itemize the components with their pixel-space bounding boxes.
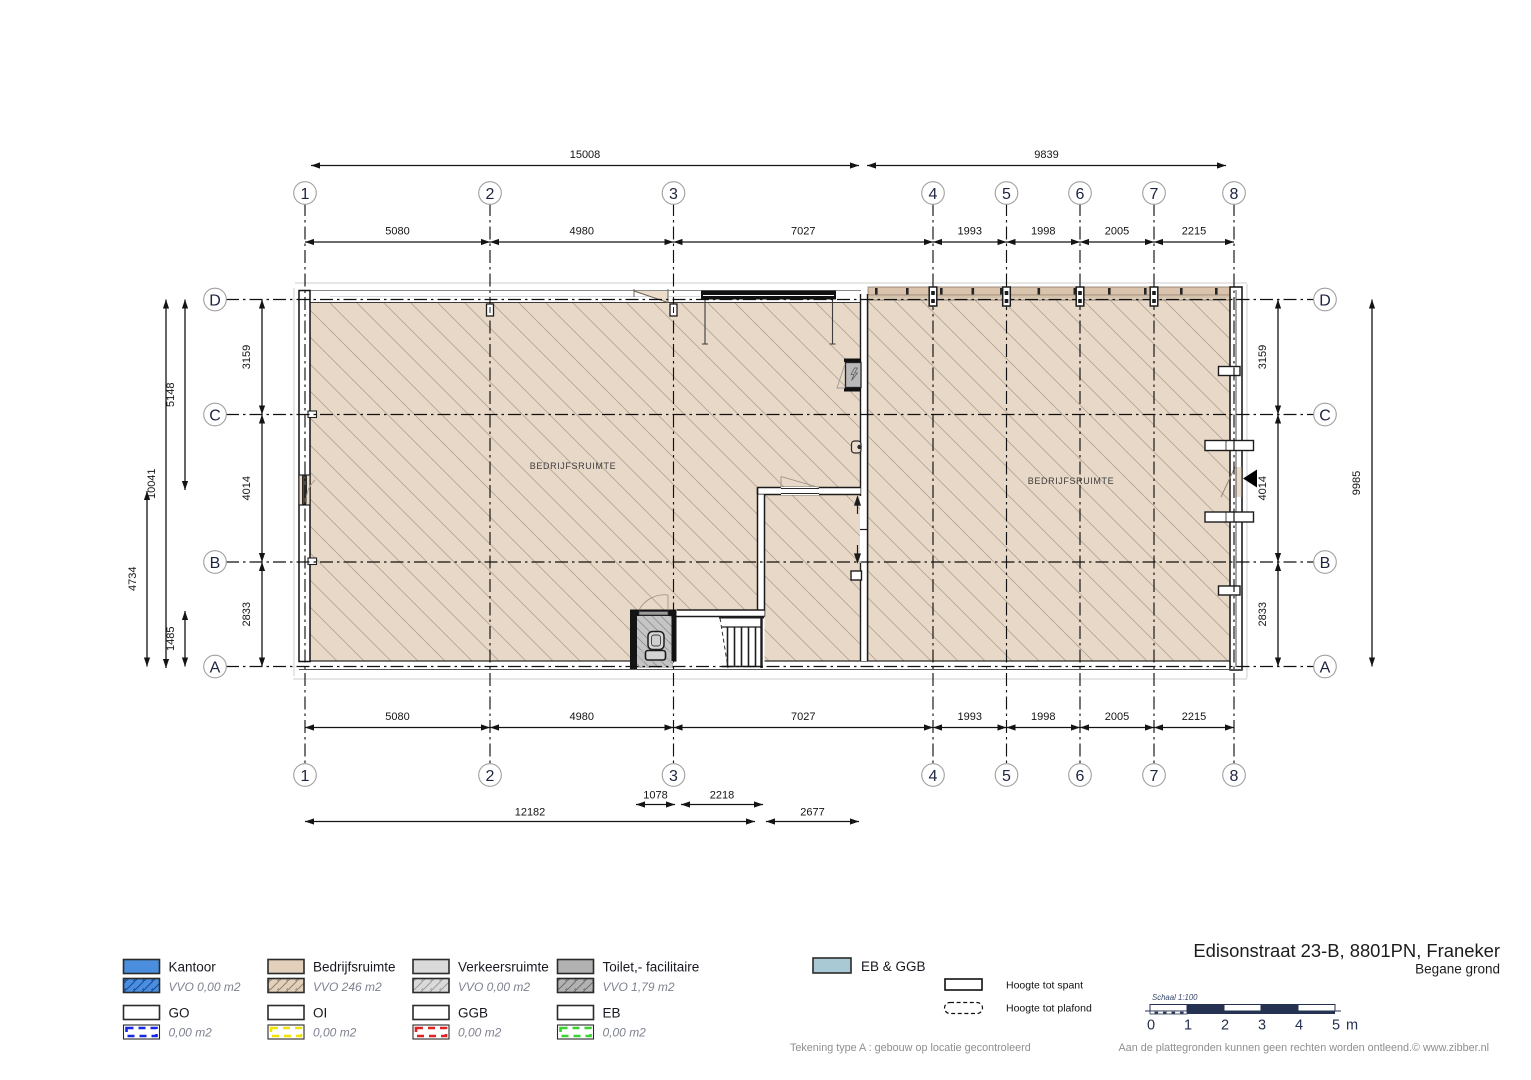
svg-text:3: 3: [1258, 1018, 1266, 1034]
svg-text:C: C: [1319, 407, 1331, 424]
svg-text:0,00 m2: 0,00 m2: [313, 1026, 357, 1040]
svg-text:EB: EB: [603, 1006, 621, 1021]
svg-text:C: C: [209, 407, 221, 424]
svg-text:1078: 1078: [643, 790, 667, 802]
svg-text:D: D: [1319, 292, 1331, 309]
svg-text:Begane grond: Begane grond: [1415, 962, 1500, 977]
svg-text:1: 1: [301, 768, 310, 785]
svg-text:0,00 m2: 0,00 m2: [169, 1026, 213, 1040]
svg-text:Kantoor: Kantoor: [169, 960, 217, 975]
svg-text:0,00 m2: 0,00 m2: [603, 1026, 647, 1040]
svg-text:4014: 4014: [241, 476, 253, 500]
svg-text:1998: 1998: [1031, 226, 1055, 238]
svg-text:4: 4: [929, 768, 938, 785]
svg-text:5148: 5148: [165, 383, 177, 407]
svg-text:EB & GGB: EB & GGB: [861, 959, 926, 974]
svg-text:4734: 4734: [127, 567, 139, 591]
svg-text:5: 5: [1002, 768, 1011, 785]
svg-text:8: 8: [1230, 768, 1239, 785]
svg-text:2833: 2833: [1257, 602, 1269, 626]
svg-text:Toilet,- facilitaire: Toilet,- facilitaire: [603, 960, 700, 975]
svg-text:6: 6: [1076, 186, 1085, 203]
svg-text:2: 2: [486, 186, 495, 203]
svg-text:Schaal 1:100: Schaal 1:100: [1152, 993, 1198, 1002]
svg-text:2: 2: [486, 768, 495, 785]
svg-text:Aan de plattegronden kunnen ge: Aan de plattegronden kunnen geen rechten…: [1118, 1042, 1489, 1054]
svg-text:1993: 1993: [958, 711, 982, 723]
svg-text:8: 8: [1230, 186, 1239, 203]
svg-text:VVO 0,00 m2: VVO 0,00 m2: [458, 980, 530, 994]
svg-text:0: 0: [1147, 1018, 1155, 1034]
svg-text:9985: 9985: [1351, 471, 1363, 495]
svg-text:12182: 12182: [515, 807, 546, 819]
svg-text:A: A: [1320, 659, 1331, 676]
svg-text:0,00 m2: 0,00 m2: [458, 1026, 502, 1040]
svg-text:5: 5: [1002, 186, 1011, 203]
svg-text:GO: GO: [169, 1006, 190, 1021]
svg-text:3: 3: [669, 186, 678, 203]
svg-text:GGB: GGB: [458, 1006, 488, 1021]
svg-text:1993: 1993: [958, 226, 982, 238]
svg-text:2677: 2677: [800, 807, 824, 819]
svg-text:4: 4: [1295, 1018, 1303, 1034]
svg-text:BEDRIJFSRUIMTE: BEDRIJFSRUIMTE: [530, 461, 616, 471]
svg-text:Hoogte tot plafond: Hoogte tot plafond: [1006, 1003, 1092, 1015]
svg-text:7027: 7027: [791, 226, 815, 238]
svg-text:7: 7: [1150, 768, 1159, 785]
svg-text:Verkeersruimte: Verkeersruimte: [458, 960, 549, 975]
svg-text:4: 4: [929, 186, 938, 203]
svg-text:7027: 7027: [791, 711, 815, 723]
svg-text:5: 5: [1332, 1018, 1340, 1034]
svg-text:15008: 15008: [570, 149, 601, 161]
svg-text:VVO 246 m2: VVO 246 m2: [313, 980, 382, 994]
svg-text:2833: 2833: [241, 602, 253, 626]
svg-text:1: 1: [1184, 1018, 1192, 1034]
svg-text:Tekening type A : gebouw op lo: Tekening type A : gebouw op locatie geco…: [790, 1042, 1031, 1054]
svg-text:2218: 2218: [710, 790, 734, 802]
svg-text:7: 7: [1150, 186, 1159, 203]
svg-text:BEDRIJFSRUIMTE: BEDRIJFSRUIMTE: [1028, 476, 1114, 486]
svg-text:5080: 5080: [385, 226, 409, 238]
svg-text:2215: 2215: [1182, 711, 1206, 723]
svg-text:B: B: [1320, 555, 1331, 572]
svg-text:2: 2: [1221, 1018, 1229, 1034]
svg-text:6: 6: [1076, 768, 1085, 785]
svg-text:2005: 2005: [1105, 226, 1129, 238]
svg-text:4980: 4980: [570, 226, 594, 238]
svg-text:Hoogte tot spant: Hoogte tot spant: [1006, 980, 1083, 992]
svg-text:VVO 0,00 m2: VVO 0,00 m2: [169, 980, 241, 994]
svg-text:4014: 4014: [1257, 476, 1269, 500]
svg-text:1998: 1998: [1031, 711, 1055, 723]
svg-text:1485: 1485: [165, 627, 177, 651]
svg-text:3: 3: [669, 768, 678, 785]
svg-text:2005: 2005: [1105, 711, 1129, 723]
svg-text:Edisonstraat 23-B, 8801PN, Fra: Edisonstraat 23-B, 8801PN, Franeker: [1193, 940, 1500, 961]
svg-text:A: A: [210, 659, 221, 676]
svg-text:Bedrijfsruimte: Bedrijfsruimte: [313, 960, 396, 975]
svg-text:4980: 4980: [570, 711, 594, 723]
svg-text:2215: 2215: [1182, 226, 1206, 238]
svg-text:VVO 1,79 m2: VVO 1,79 m2: [603, 980, 675, 994]
svg-text:D: D: [209, 292, 221, 309]
svg-text:OI: OI: [313, 1006, 327, 1021]
svg-text:B: B: [210, 555, 221, 572]
svg-text:5080: 5080: [385, 711, 409, 723]
svg-text:3159: 3159: [241, 345, 253, 369]
svg-text:m: m: [1346, 1018, 1358, 1034]
svg-text:9839: 9839: [1034, 149, 1058, 161]
svg-text:1: 1: [301, 186, 310, 203]
svg-text:3159: 3159: [1257, 345, 1269, 369]
